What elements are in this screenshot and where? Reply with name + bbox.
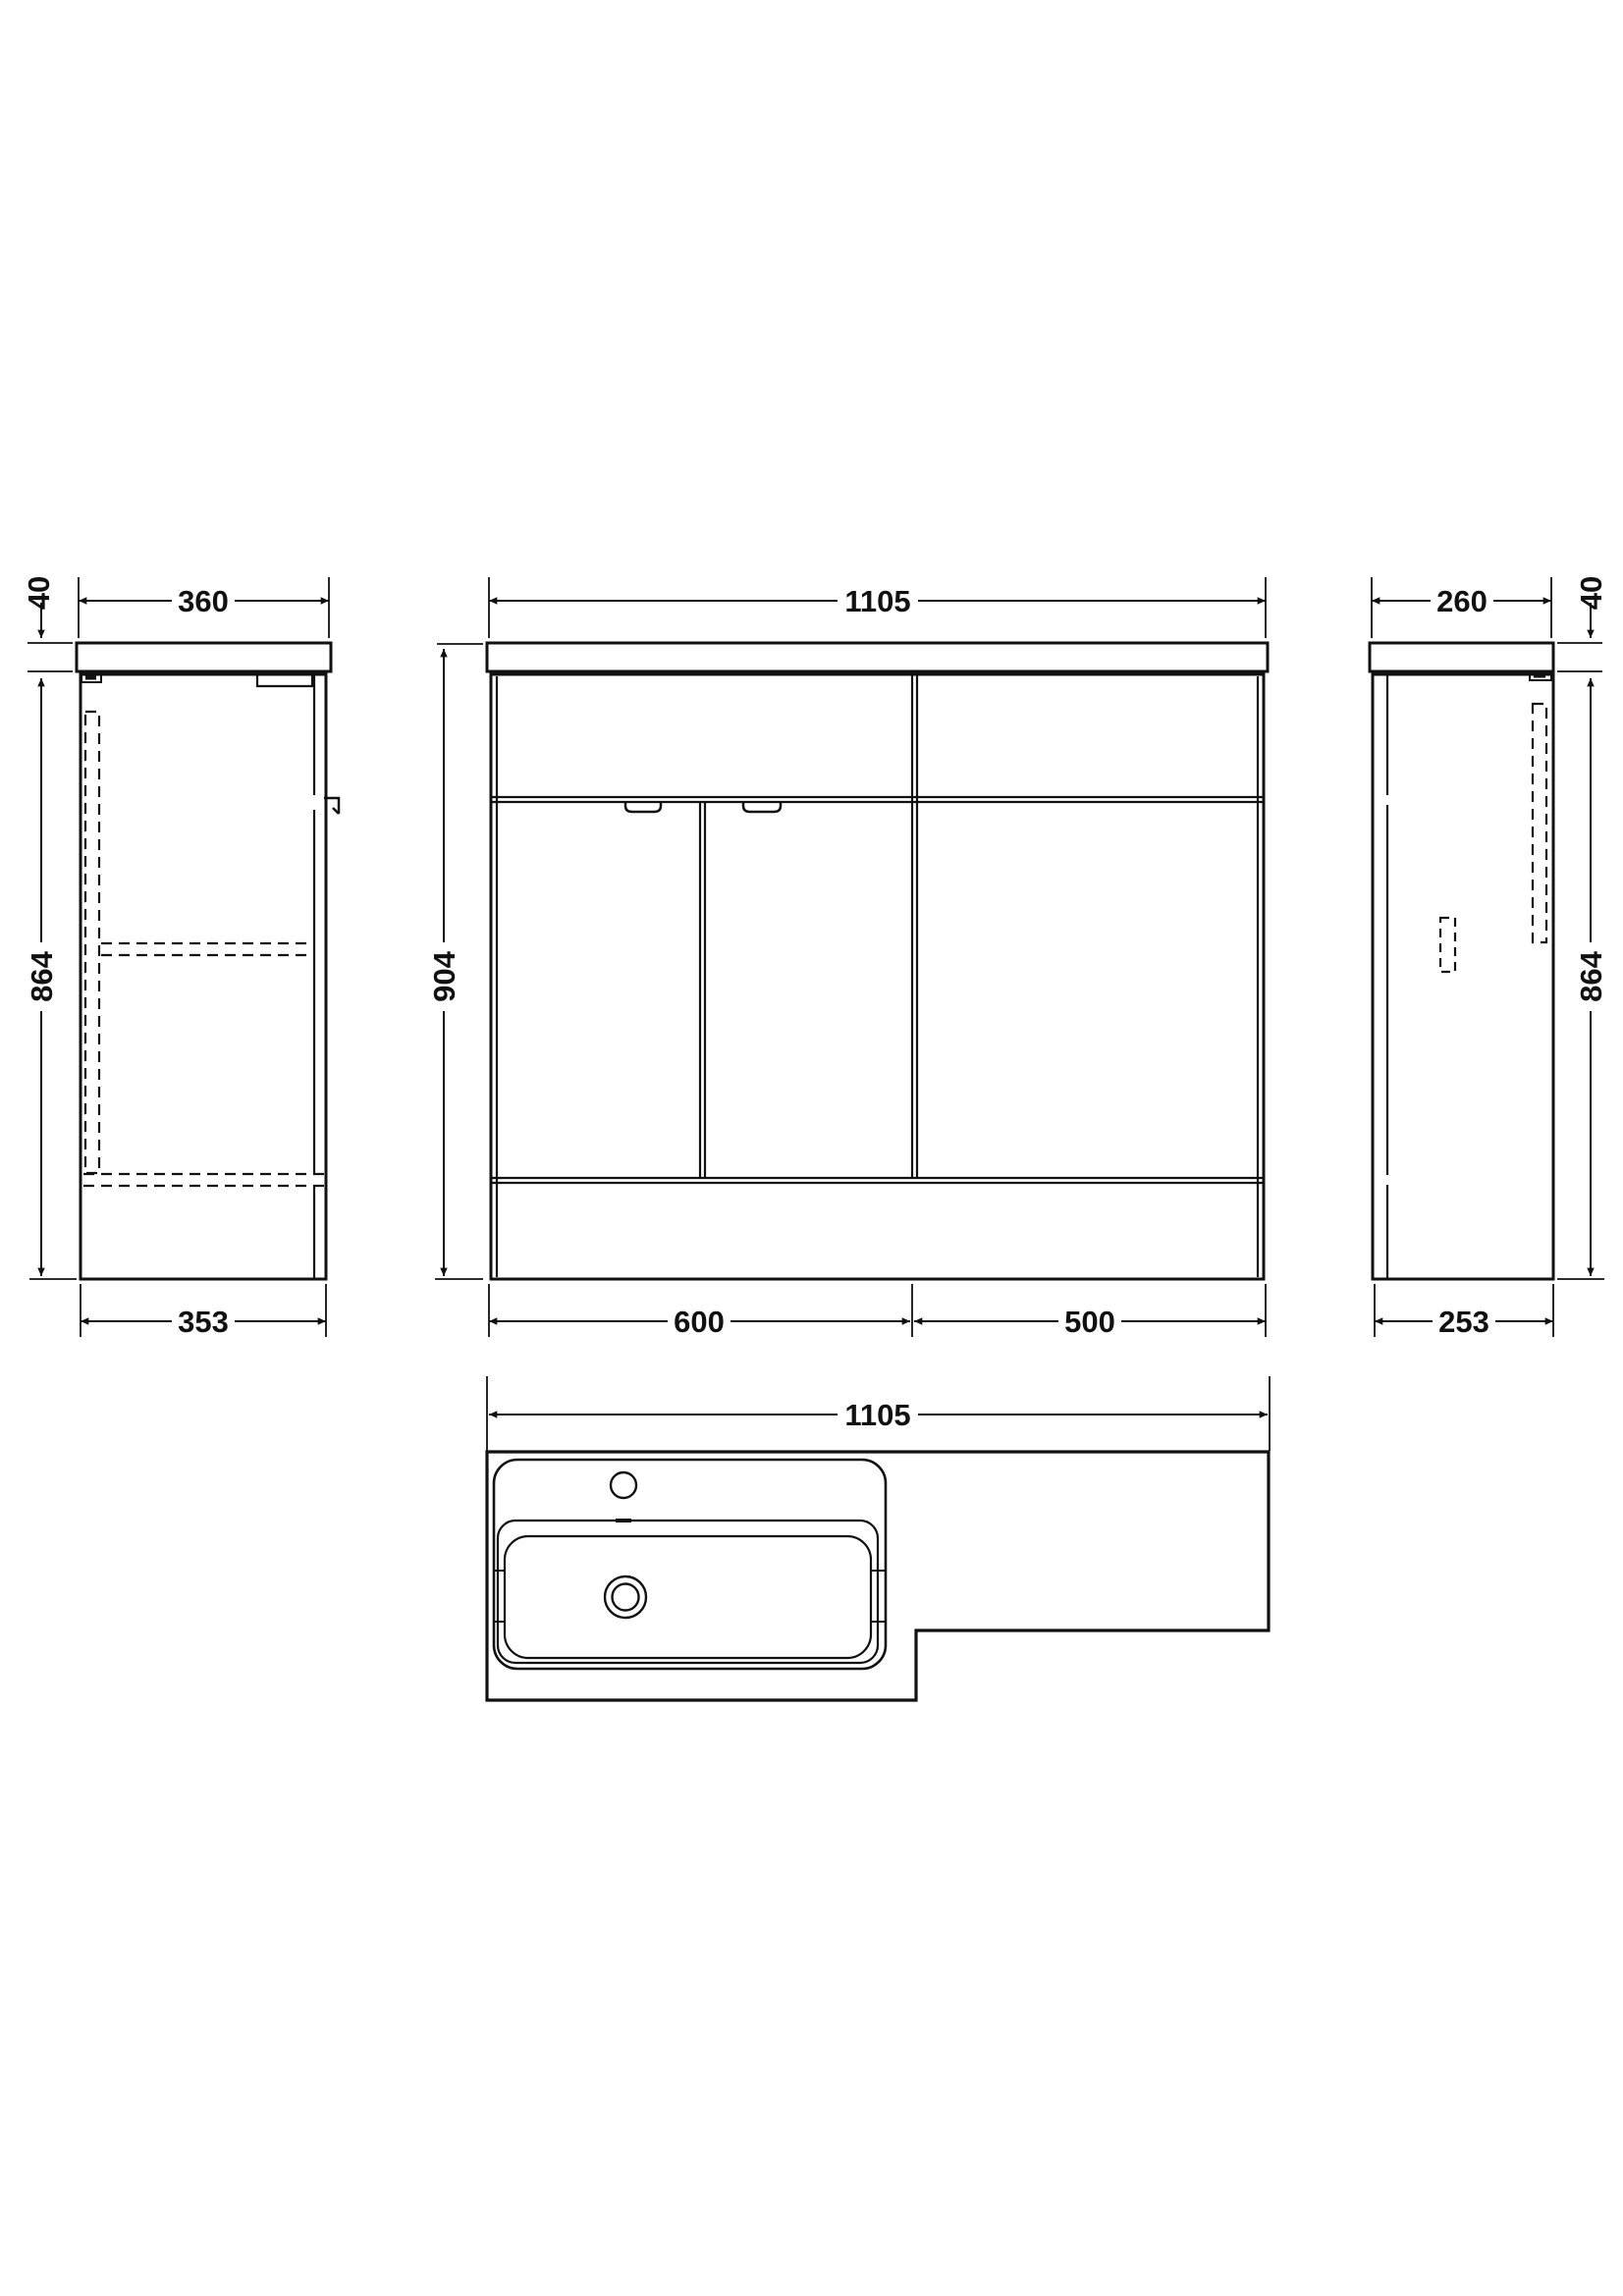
cabinet-side-edges	[497, 676, 1258, 1277]
dim-front-wc-width-label: 500	[1064, 1305, 1115, 1339]
cabinet-front-outline	[491, 674, 1264, 1279]
dim-plan-width-label: 1105	[844, 1398, 910, 1432]
shelf-hidden-line	[101, 943, 312, 955]
door-divider	[700, 802, 705, 1178]
dim-front-width-label: 1105	[844, 584, 910, 618]
fitting-hidden-line	[1440, 918, 1455, 972]
side-left-view	[25, 577, 339, 1337]
basin	[494, 1460, 886, 1669]
plinth-divider	[491, 1178, 1264, 1183]
dim-front-height-label: 904	[427, 950, 461, 1001]
waste-hole-inner	[613, 1584, 639, 1611]
extension-lines	[1557, 643, 1602, 671]
dim-side-left-width-label: 360	[178, 584, 229, 618]
technical-drawing-page: 360 40 864 353 1105 904 600 500 260 40 8…	[0, 0, 1623, 2296]
section-divider	[912, 674, 917, 1178]
countertop-side	[1370, 643, 1553, 671]
countertop-front	[487, 643, 1268, 671]
tap-hole	[611, 1472, 636, 1498]
dim-side-right-height-label: 864	[1574, 950, 1608, 1001]
door-hidden-line	[1533, 704, 1546, 942]
extension-lines	[27, 643, 73, 671]
top-band-divider	[491, 797, 1264, 802]
bottom-panel-hidden-line	[83, 1174, 324, 1186]
cabinet-side-outline	[1373, 674, 1553, 1279]
countertop-side	[77, 643, 331, 671]
extension-lines	[489, 1284, 1266, 1337]
cabinet-side-outline	[81, 674, 326, 1279]
dim-side-right-bottom-width-label: 253	[1438, 1305, 1489, 1339]
front-view	[427, 577, 1268, 1337]
side-right-view	[1370, 577, 1607, 1337]
top-rail-bracket	[257, 674, 312, 686]
technical-drawing: 360 40 864 353 1105 904 600 500 260 40 8…	[0, 0, 1623, 2296]
basin-rim-joint-ticks	[494, 1571, 886, 1622]
dim-side-right-thickness-label: 40	[1574, 576, 1608, 610]
door-handle-recess	[743, 802, 781, 812]
basin-outer-rim	[494, 1460, 886, 1669]
dim-side-right-width-label: 260	[1436, 584, 1488, 618]
door-hidden-line	[85, 712, 99, 1173]
door-handle-recess	[625, 802, 661, 812]
dim-front-vanity-width-label: 600	[674, 1305, 725, 1339]
dim-side-left-bottom-width-label: 353	[178, 1305, 229, 1339]
dim-side-left-height-label: 864	[25, 950, 59, 1001]
basin-bowl-rim	[498, 1521, 878, 1663]
dim-side-left-thickness-label: 40	[22, 576, 56, 610]
basin-bowl-inner	[505, 1536, 871, 1658]
